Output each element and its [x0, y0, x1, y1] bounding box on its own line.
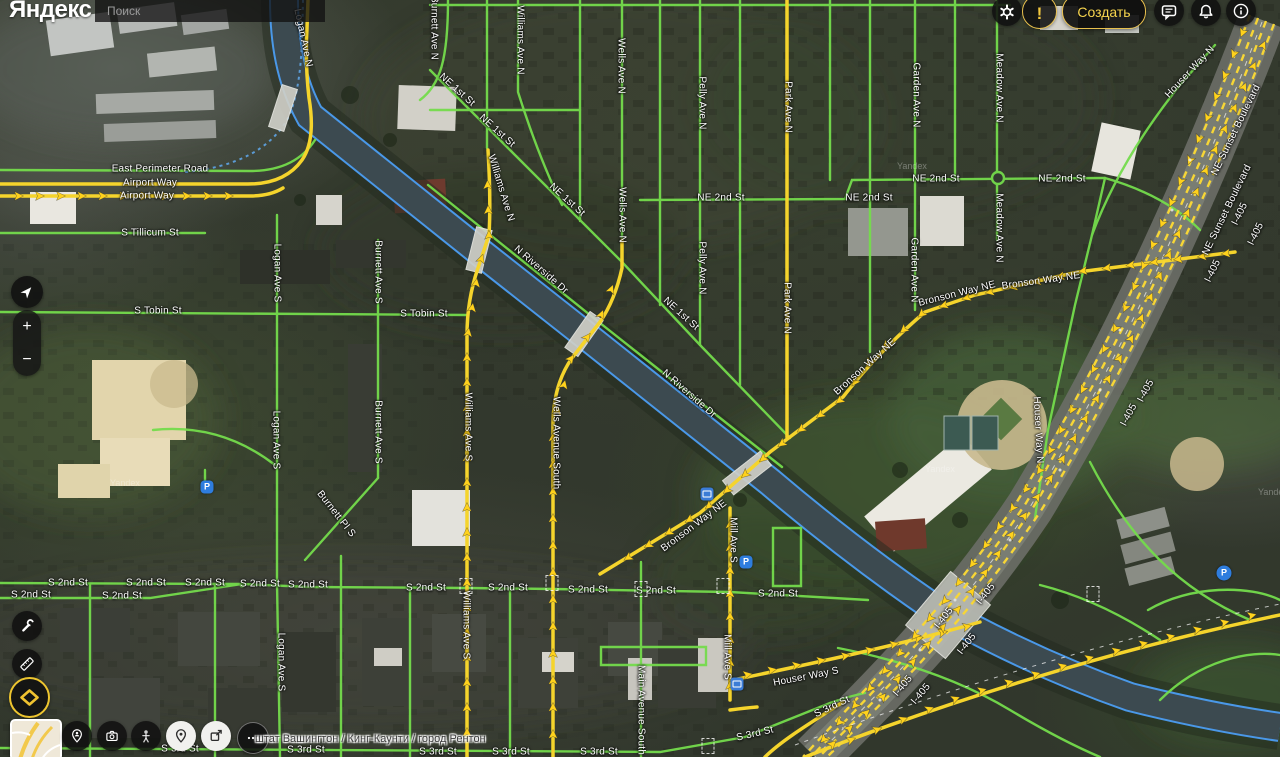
minimap-preview-icon [12, 721, 60, 757]
zoom-in-button[interactable]: + [13, 319, 41, 335]
gear-icon [996, 0, 1018, 22]
photos-button[interactable] [97, 721, 127, 751]
wrench-icon [16, 615, 38, 637]
feedback-button[interactable] [1154, 0, 1184, 26]
map-pin-icon [170, 724, 192, 748]
panoramas-button[interactable] [131, 721, 161, 751]
compass-arrow-icon [15, 280, 39, 304]
my-places-button[interactable] [62, 721, 92, 751]
zoom-out-button[interactable]: − [13, 352, 41, 368]
layers-diamond-icon [16, 684, 43, 711]
create-button[interactable]: Создать [1062, 0, 1146, 29]
zoom-control: + − [13, 310, 41, 376]
notifications-button[interactable] [1191, 0, 1221, 26]
chat-icon [1158, 0, 1180, 23]
share-button[interactable] [201, 721, 231, 751]
parking-icon[interactable]: P [740, 556, 753, 569]
search-bar[interactable] [95, 0, 325, 22]
compass-button[interactable] [11, 276, 43, 308]
info-button[interactable] [1226, 0, 1256, 26]
ruler-button[interactable] [12, 649, 42, 679]
yandex-maps-app: East Perimeter RoadAirport WayAirport Wa… [0, 0, 1280, 757]
bus-icon[interactable] [701, 488, 714, 501]
train-icon[interactable] [731, 678, 744, 691]
parking-round-icon[interactable]: P [1217, 566, 1232, 581]
route-editor-button[interactable] [12, 611, 42, 641]
geolocation-button[interactable] [166, 721, 196, 751]
yandex-logo[interactable]: Яндекс [9, 0, 91, 24]
breadcrumb[interactable]: штат Вашингтон / Кинг-Каунти / город Рен… [255, 733, 486, 745]
map-type-preview[interactable] [10, 719, 62, 757]
search-input[interactable] [95, 4, 307, 18]
layers-button[interactable] [9, 677, 50, 718]
external-link-icon [205, 725, 227, 747]
exclamation-icon: ! [1037, 5, 1043, 22]
pegman-icon [135, 724, 157, 748]
bell-icon [1195, 0, 1217, 23]
ruler-icon [16, 653, 38, 675]
camera-icon [101, 725, 123, 747]
person-pin-icon [66, 724, 88, 748]
info-icon [1230, 0, 1252, 23]
parking-icon[interactable]: P [201, 481, 214, 494]
map-overlay-graphics [0, 0, 1280, 757]
